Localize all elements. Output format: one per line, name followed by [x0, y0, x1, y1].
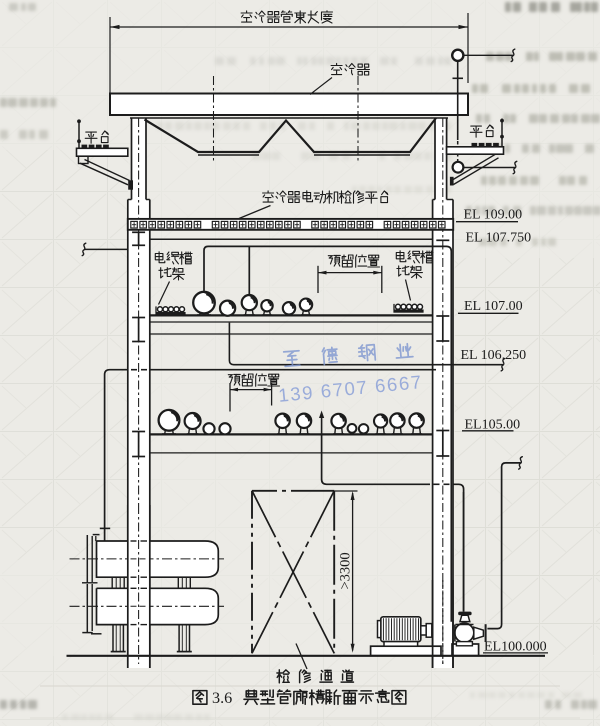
- svg-text:EL 107.00: EL 107.00: [464, 299, 523, 314]
- svg-text:>3300: >3300: [338, 552, 354, 589]
- svg-text:EL 107.750: EL 107.750: [466, 231, 532, 246]
- svg-text:EL 106.250: EL 106.250: [461, 348, 527, 363]
- svg-text:EL105.00: EL105.00: [465, 417, 521, 432]
- svg-text:3.6: 3.6: [212, 689, 232, 707]
- svg-text:EL 109.00: EL 109.00: [464, 207, 523, 222]
